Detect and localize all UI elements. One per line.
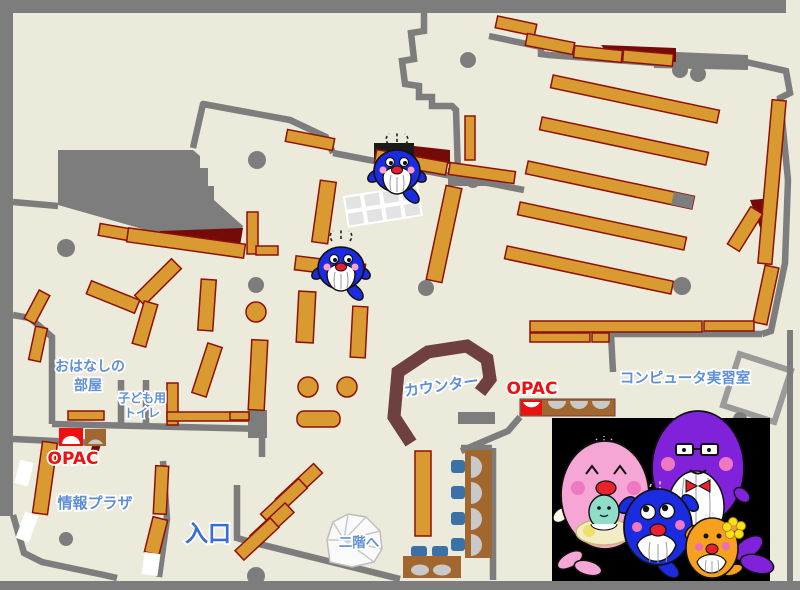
floor-map-canvas: おはなしの 部屋 子ども用 トイレ OPAC 情報プラザ 入口 二階へ カウンタ… — [0, 0, 800, 590]
label-opac-right: OPAC — [507, 379, 558, 399]
library-floor-map-page: おはなしの 部屋 子ども用 トイレ OPAC 情報プラザ 入口 二階へ カウンタ… — [0, 0, 800, 590]
label-kids-toilet-line1: 子ども用 — [118, 391, 166, 405]
label-to-second-floor: 二階へ — [339, 534, 380, 551]
label-storytelling-room-line2: 部屋 — [74, 377, 102, 394]
opac-terminal-left — [59, 428, 106, 446]
whale-family-panel — [550, 410, 776, 586]
opac-terminal-right — [520, 399, 615, 416]
label-info-plaza: 情報プラザ — [57, 494, 132, 512]
label-entrance: 入口 — [185, 521, 231, 547]
label-storytelling-room-line1: おはなしの — [55, 359, 125, 375]
label-computer-room: コンピュータ実習室 — [620, 369, 751, 387]
label-opac-left: OPAC — [48, 449, 99, 469]
label-kids-toilet-line2: トイレ — [124, 406, 160, 420]
